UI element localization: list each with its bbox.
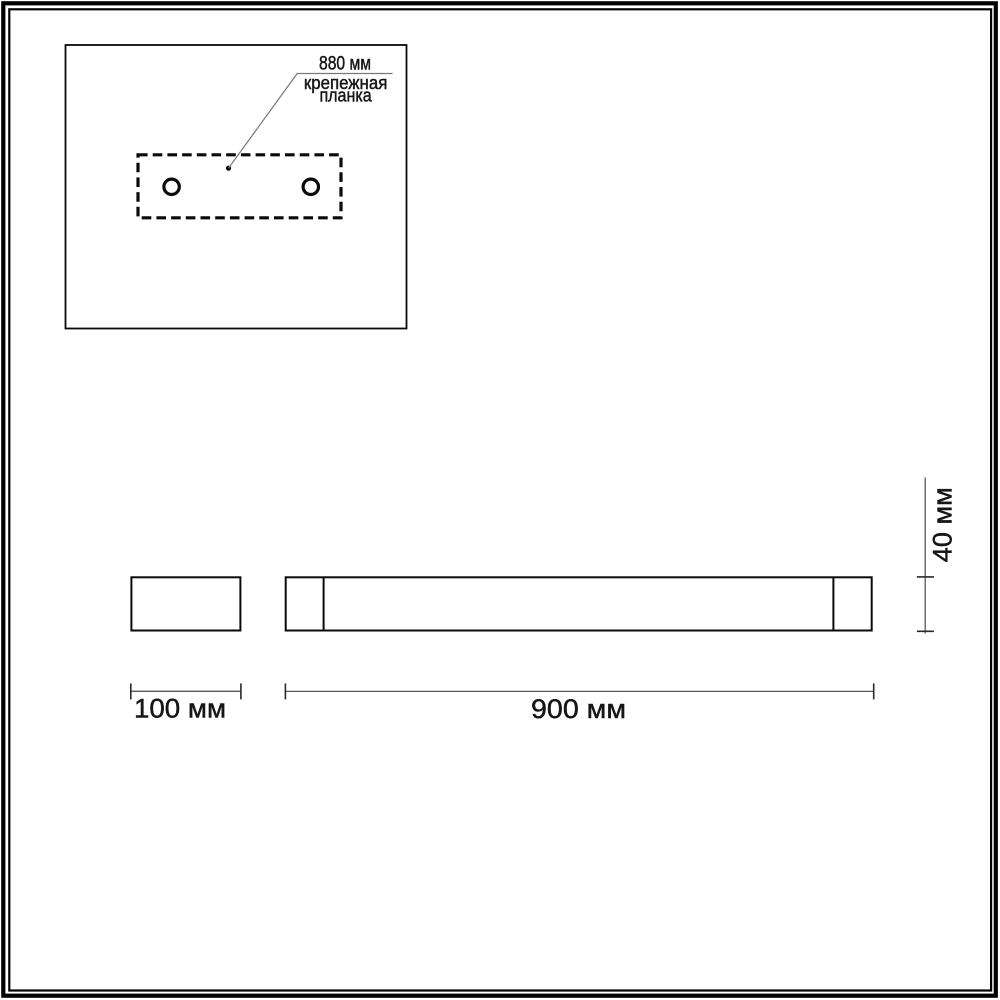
svg-text:900 мм: 900 мм	[531, 694, 626, 724]
svg-text:планка: планка	[319, 84, 372, 105]
svg-text:40 мм: 40 мм	[928, 487, 958, 562]
svg-text:100 мм: 100 мм	[134, 694, 226, 724]
